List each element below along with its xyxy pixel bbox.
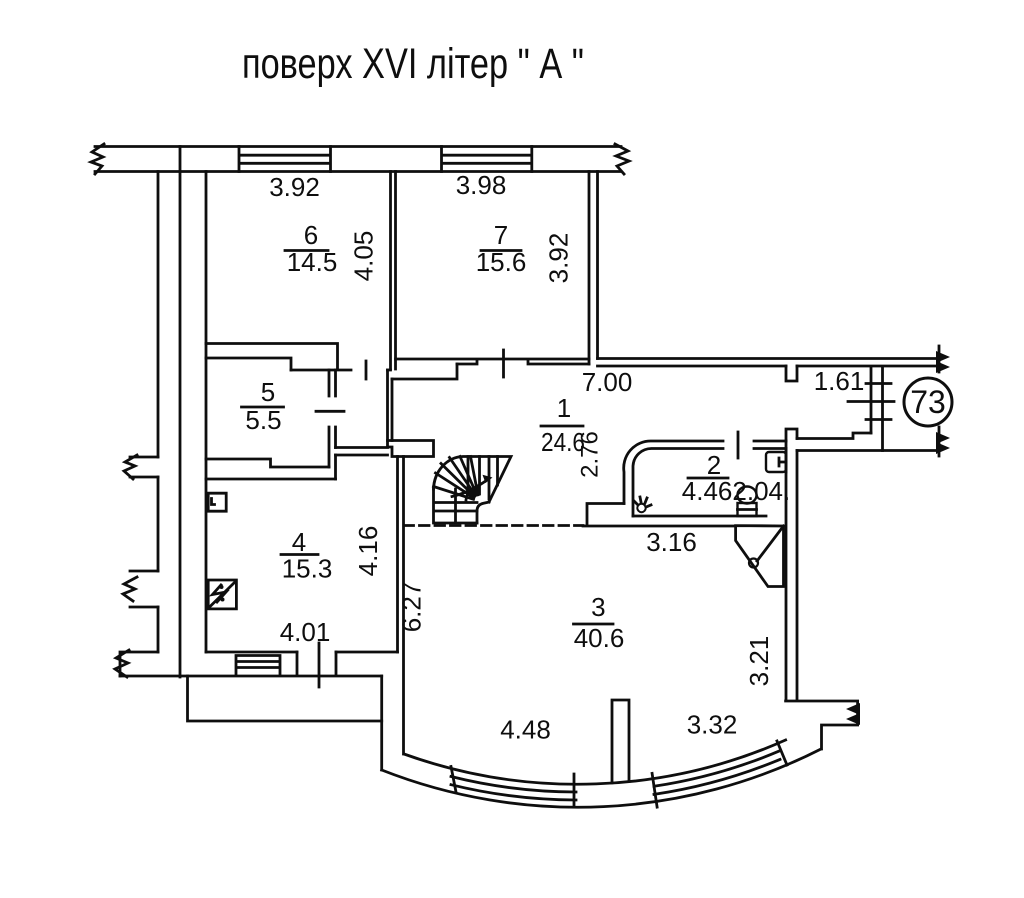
- svg-text:5.5: 5.5: [245, 405, 281, 435]
- svg-text:6: 6: [304, 220, 318, 250]
- svg-text:6.27: 6.27: [397, 582, 427, 633]
- svg-text:4.01: 4.01: [280, 617, 331, 647]
- svg-text:14.5: 14.5: [287, 247, 338, 277]
- svg-text:3.92: 3.92: [544, 233, 574, 284]
- svg-text:1: 1: [557, 393, 571, 423]
- svg-text:5: 5: [261, 377, 275, 407]
- svg-text:2.76: 2.76: [577, 431, 604, 478]
- svg-text:1.61: 1.61: [814, 366, 865, 396]
- svg-text:3.32: 3.32: [687, 710, 738, 740]
- svg-text:4.462.04.: 4.462.04.: [682, 476, 790, 506]
- svg-text:15.3: 15.3: [282, 554, 333, 584]
- svg-text:3: 3: [591, 592, 605, 622]
- svg-text:4.05: 4.05: [349, 231, 379, 282]
- svg-text:3.98: 3.98: [456, 170, 507, 200]
- svg-text:3.16: 3.16: [646, 527, 697, 557]
- svg-text:7: 7: [494, 220, 508, 250]
- svg-text:40.6: 40.6: [574, 623, 625, 653]
- svg-text:3.92: 3.92: [269, 172, 320, 202]
- svg-text:4.16: 4.16: [353, 526, 383, 577]
- svg-text:73: 73: [910, 384, 946, 420]
- svg-text:3.21: 3.21: [744, 636, 774, 687]
- svg-text:поверх XVI літер " А ": поверх XVI літер " А ": [242, 40, 584, 88]
- svg-text:7.00: 7.00: [582, 367, 633, 397]
- svg-text:15.6: 15.6: [476, 247, 527, 277]
- svg-text:4.48: 4.48: [500, 715, 551, 745]
- svg-text:4: 4: [292, 527, 306, 557]
